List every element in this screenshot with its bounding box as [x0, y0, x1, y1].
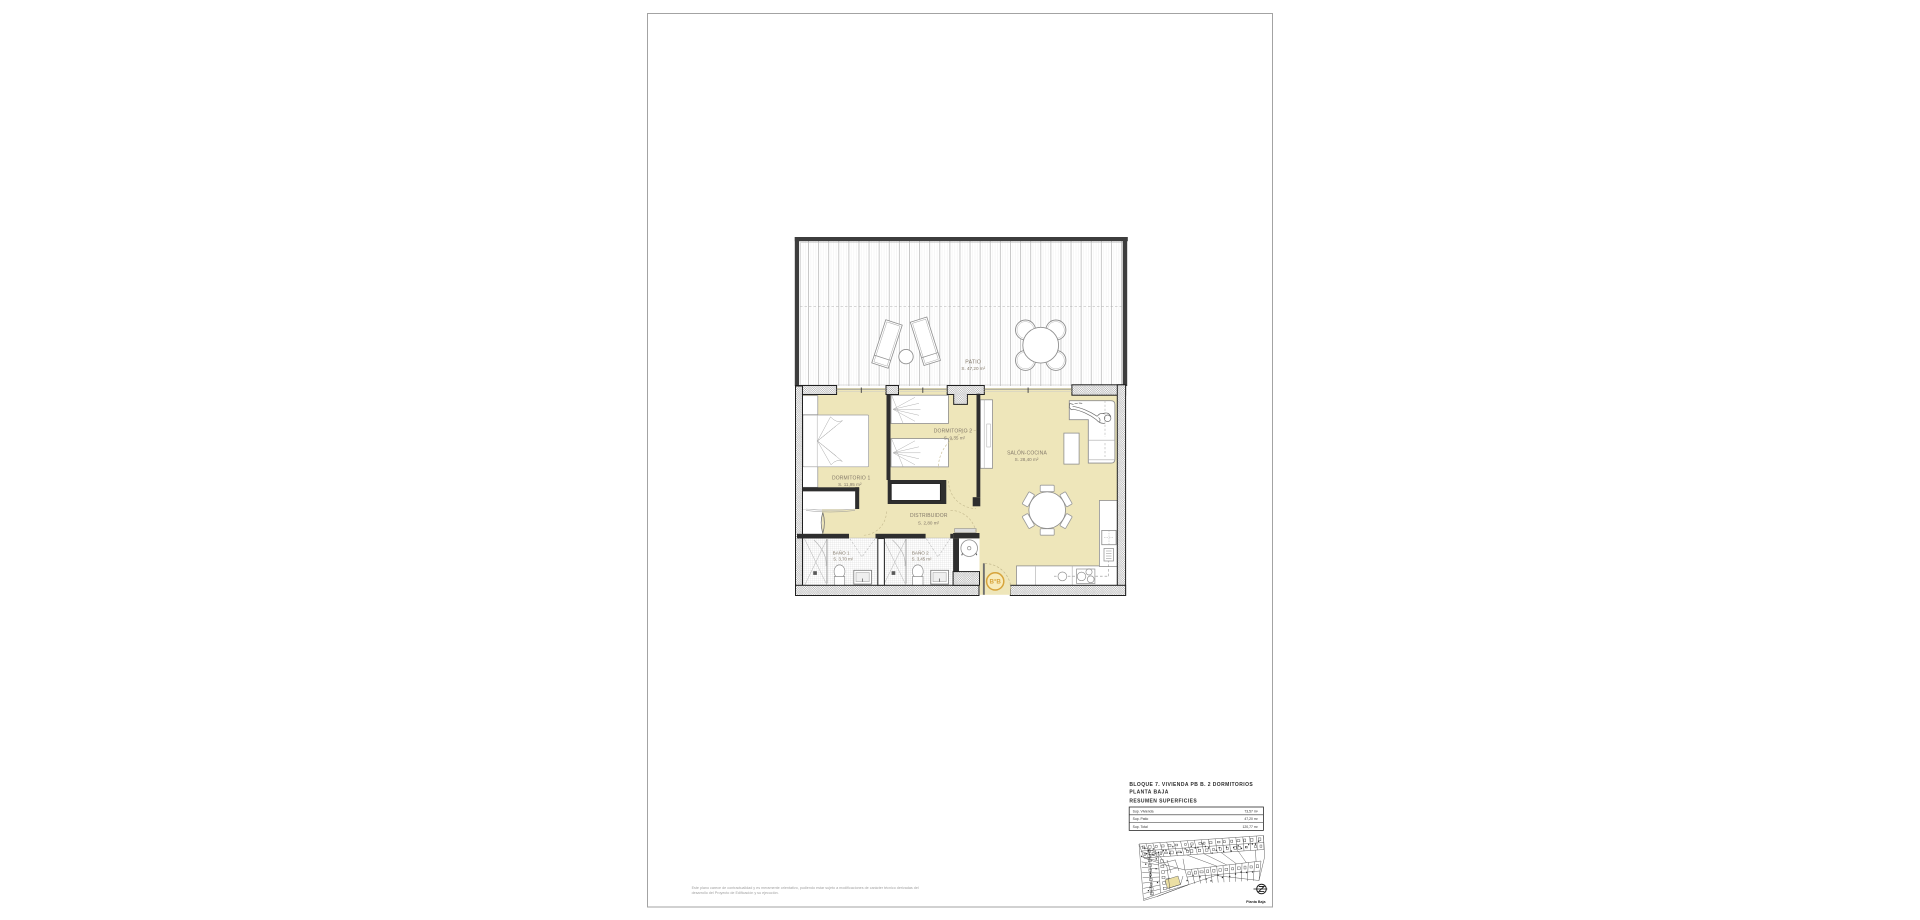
svg-text:DORMITORIO 1: DORMITORIO 1	[832, 475, 870, 481]
svg-text:PATIO: PATIO	[965, 360, 981, 366]
svg-text:Este plano carece de contractu: Este plano carece de contractualidad y e…	[692, 886, 919, 890]
svg-text:S. 2,80 m²: S. 2,80 m²	[918, 520, 940, 525]
svg-text:S. 11,95 m²: S. 11,95 m²	[838, 482, 862, 487]
svg-text:S. 47,20 m²: S. 47,20 m²	[961, 366, 985, 371]
svg-text:Sup. Vivienda: Sup. Vivienda	[1133, 809, 1154, 813]
svg-text:PLANTA BAJA: PLANTA BAJA	[1129, 789, 1168, 795]
svg-text:S. 3,70 m²: S. 3,70 m²	[833, 556, 853, 561]
svg-text:DISTRIBUIDOR: DISTRIBUIDOR	[910, 513, 948, 519]
svg-text:BAÑO 1: BAÑO 1	[833, 550, 850, 556]
svg-text:BLOQUE 7. VIVIENDA PB B. 2 DOR: BLOQUE 7. VIVIENDA PB B. 2 DORMITORIOS	[1129, 782, 1253, 788]
svg-text:47,20 m²: 47,20 m²	[1244, 817, 1258, 821]
svg-text:S. 9,35 m²: S. 9,35 m²	[944, 435, 966, 440]
svg-text:RESUMEN SUPERFICIES: RESUMEN SUPERFICIES	[1129, 798, 1197, 804]
svg-text:S. 3,45 m²: S. 3,45 m²	[912, 556, 932, 561]
svg-text:120,77 m²: 120,77 m²	[1243, 825, 1259, 829]
svg-text:BAÑO 2: BAÑO 2	[912, 550, 929, 556]
svg-text:Planta Baja: Planta Baja	[1246, 900, 1266, 904]
svg-text:DORMITORIO 2: DORMITORIO 2	[934, 429, 972, 435]
svg-text:S. 28,40 m²: S. 28,40 m²	[1015, 457, 1039, 462]
svg-text:Sup. Total: Sup. Total	[1133, 825, 1148, 829]
svg-text:desarrollo del Proyecto de Edi: desarrollo del Proyecto de Edificación y…	[692, 891, 779, 895]
svg-text:B°B: B°B	[989, 579, 1001, 586]
svg-text:Sup. Patio: Sup. Patio	[1133, 817, 1149, 821]
svg-text:SALÓN-COCINA: SALÓN-COCINA	[1007, 450, 1047, 457]
svg-text:73,57 m²: 73,57 m²	[1244, 809, 1258, 813]
